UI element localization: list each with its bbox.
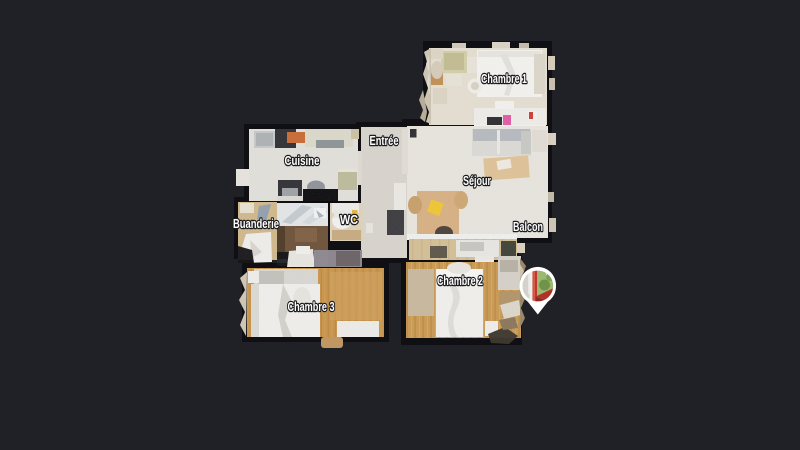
svg-text:Chambre 1: Chambre 1 (481, 72, 527, 86)
svg-text:Chambre 2: Chambre 2 (437, 274, 483, 288)
svg-text:Séjour: Séjour (463, 174, 491, 188)
svg-text:Chambre 3: Chambre 3 (288, 300, 335, 314)
svg-text:WC: WC (340, 213, 358, 227)
svg-text:Balcon: Balcon (513, 220, 543, 234)
svg-text:Buanderie: Buanderie (233, 217, 279, 231)
svg-text:Entrée: Entrée (370, 134, 399, 148)
svg-text:Cuisine: Cuisine (285, 154, 320, 168)
